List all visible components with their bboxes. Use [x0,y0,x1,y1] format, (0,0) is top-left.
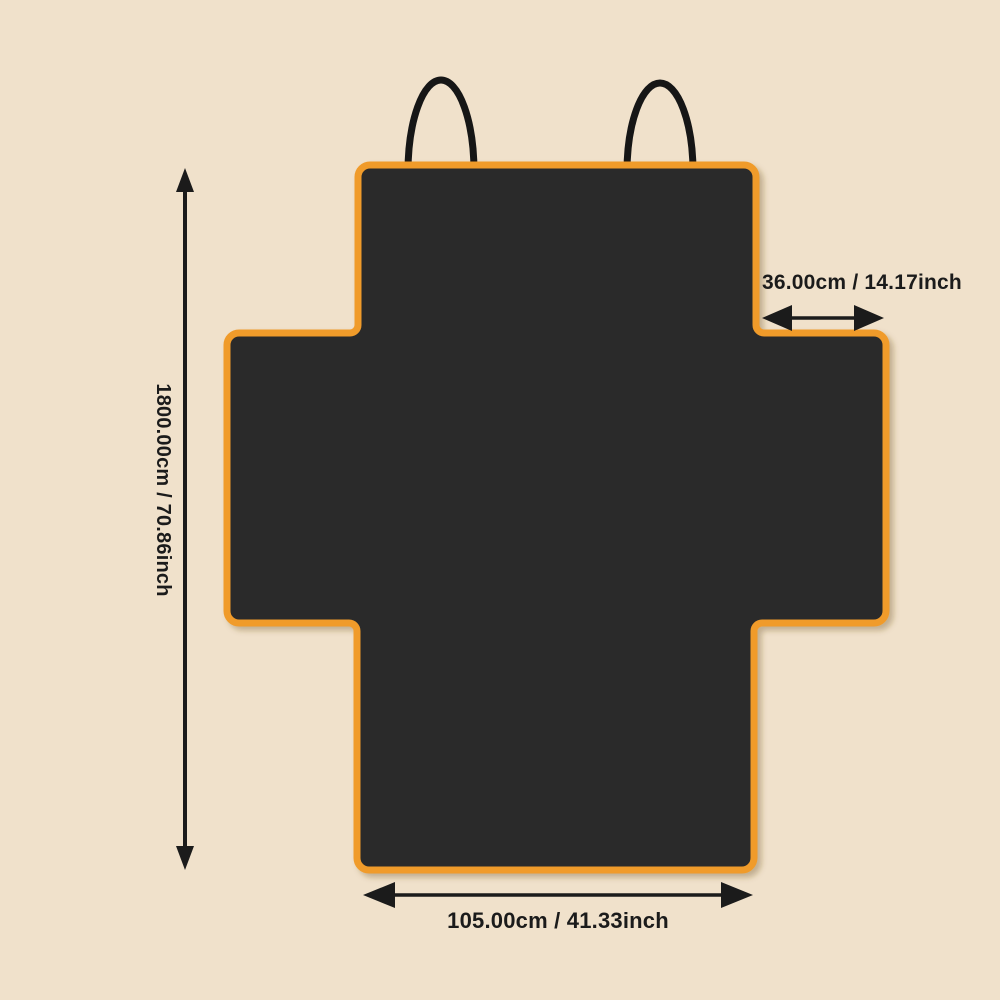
top-width-arrowhead-right-icon [854,305,884,331]
height-arrowhead-up-icon [176,168,194,192]
product-dimension-diagram: 1800.00cm / 70.86inch 36.00cm / 14.17inc… [0,0,1000,1000]
top-width-arrowhead-left-icon [762,305,792,331]
height-arrowhead-down-icon [176,846,194,870]
bottom-width-dimension-label: 105.00cm / 41.33inch [447,908,669,934]
bottom-width-dimension-arrow [363,882,753,908]
height-dimension-label: 1800.00cm / 70.86inch [151,383,175,596]
bottom-width-arrowhead-left-icon [363,882,395,908]
height-dimension-arrow [176,168,194,870]
left-strap-loop [408,80,474,172]
top-width-dimension-arrow [762,305,884,331]
bottom-width-arrowhead-right-icon [721,882,753,908]
diagram-canvas [0,0,1000,1000]
right-strap-loop [627,83,693,172]
top-width-dimension-label: 36.00cm / 14.17inch [762,270,962,295]
